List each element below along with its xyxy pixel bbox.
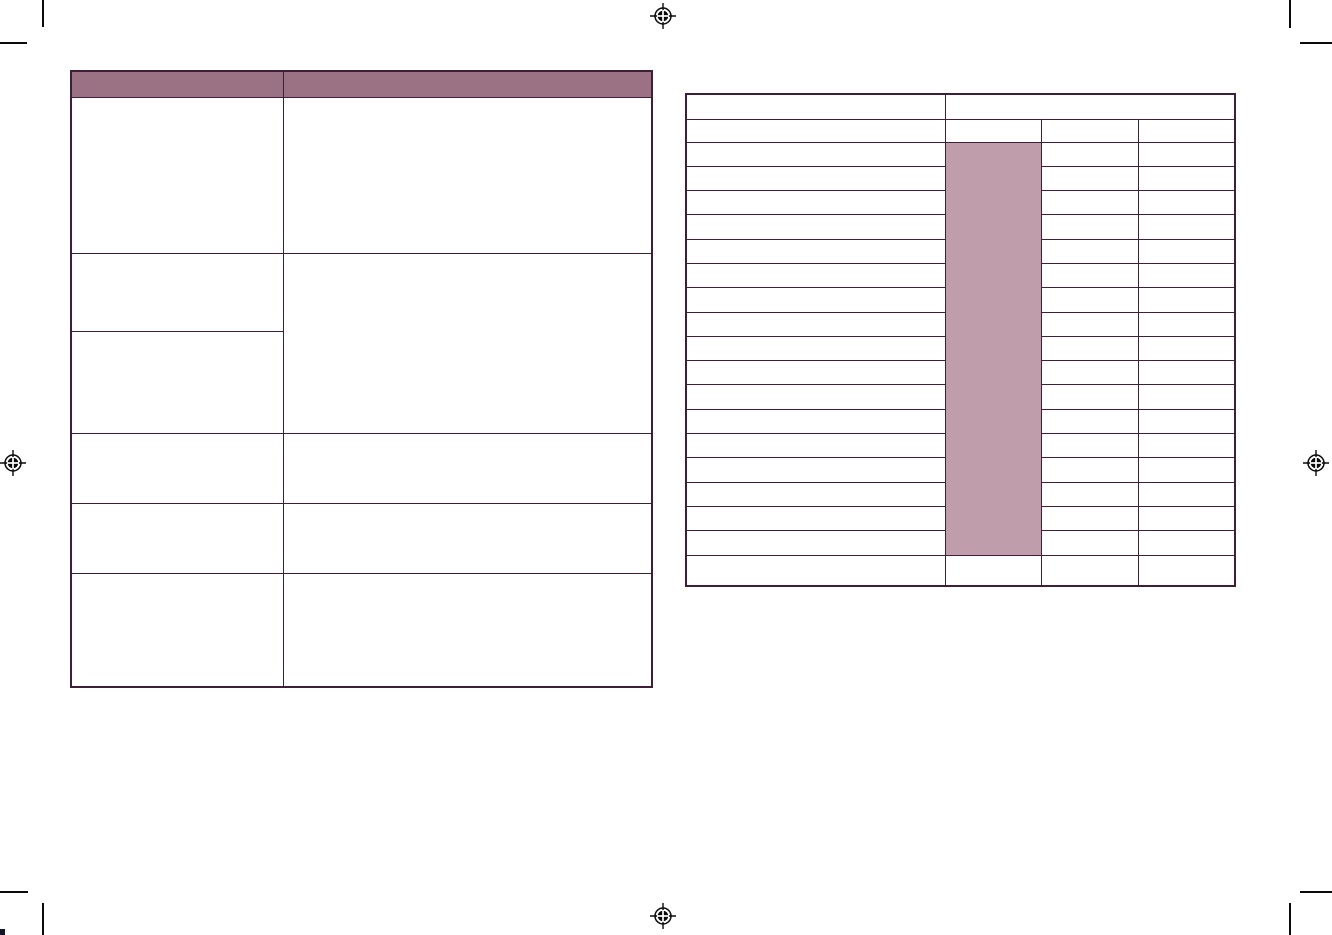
right-table [685, 93, 1236, 587]
right-table-footer-row [686, 555, 1235, 586]
right-table-cell [686, 555, 945, 586]
right-table-cell [1138, 166, 1235, 190]
right-table-cell [1138, 336, 1235, 360]
right-table-cell [1041, 119, 1138, 142]
right-table-cell [1041, 361, 1138, 385]
right-table-body [686, 142, 1235, 555]
right-table-cell [1138, 142, 1235, 166]
right-table-cell [686, 239, 945, 263]
right-table-cell [686, 191, 945, 215]
left-table-merged-cell [283, 253, 652, 433]
right-table-cell [1041, 191, 1138, 215]
crop-mark-top-left-horizontal [0, 42, 27, 44]
right-table-cell [1138, 361, 1235, 385]
right-table-cell [1041, 531, 1138, 555]
right-table-cell [1138, 434, 1235, 458]
right-table-header-row-1 [686, 94, 1235, 119]
right-table-cell [1138, 506, 1235, 530]
left-table-cell [71, 573, 283, 687]
registration-mark-icon [1303, 450, 1329, 476]
right-table-cell [1041, 142, 1138, 166]
right-table-cell [1041, 458, 1138, 482]
left-table-header-cell [71, 71, 283, 97]
right-table-cell [686, 94, 945, 119]
registration-mark-icon [650, 903, 676, 929]
right-table-cell [686, 166, 945, 190]
right-table-cell [1041, 482, 1138, 506]
left-table-row [71, 253, 652, 331]
right-table-cell [1138, 458, 1235, 482]
right-table-merged-header-cell [945, 94, 1235, 119]
right-table-cell [1138, 385, 1235, 409]
right-table-cell [1138, 119, 1235, 142]
right-table-cell [1138, 531, 1235, 555]
right-table-cell [686, 288, 945, 312]
left-table [70, 70, 653, 688]
right-table-cell [1138, 215, 1235, 239]
crop-mark-bottom-left-vertical [42, 903, 44, 935]
right-table-cell [686, 336, 945, 360]
left-table-cell [71, 331, 283, 433]
left-table-row [71, 97, 652, 253]
right-table-cell [1041, 166, 1138, 190]
right-table-cell [686, 312, 945, 336]
right-table-cell [1041, 506, 1138, 530]
right-table-cell [1138, 191, 1235, 215]
left-table-cell [71, 253, 283, 331]
left-table-cell [71, 97, 283, 253]
crop-mark-bottom-right-horizontal [1300, 891, 1332, 893]
left-table-row [71, 503, 652, 573]
left-table-header-cell [283, 71, 652, 97]
left-table-cell [283, 503, 652, 573]
right-table-cell [1041, 409, 1138, 433]
right-table-cell [1041, 263, 1138, 287]
right-table-cell [1041, 215, 1138, 239]
document-page [0, 0, 1332, 935]
crop-mark-top-right-vertical [1289, 0, 1291, 28]
right-table-cell [1041, 239, 1138, 263]
right-table-cell [686, 482, 945, 506]
right-table-cell [1138, 239, 1235, 263]
right-table-cell [1041, 385, 1138, 409]
right-table-cell [686, 434, 945, 458]
crop-mark-top-left-vertical [42, 0, 44, 27]
right-table-cell [1041, 555, 1138, 586]
right-table-cell [686, 531, 945, 555]
left-table-header-row [71, 71, 652, 97]
right-table-cell [1138, 263, 1235, 287]
right-table-cell [1138, 409, 1235, 433]
registration-mark-icon [650, 3, 676, 29]
right-table-highlight-cell [945, 142, 1041, 555]
registration-mark-icon [0, 450, 26, 476]
left-table-cell [283, 97, 652, 253]
right-table-cell [686, 142, 945, 166]
right-table-cell [686, 361, 945, 385]
right-table-cell [1138, 482, 1235, 506]
crop-mark-top-right-horizontal [1300, 42, 1332, 44]
right-table-cell [686, 506, 945, 530]
left-table-cell [71, 433, 283, 503]
right-table-row [686, 142, 1235, 166]
right-table-cell [1041, 312, 1138, 336]
crop-mark-bottom-right-vertical [1289, 903, 1291, 935]
left-table-cell [71, 503, 283, 573]
left-table-cell [283, 433, 652, 503]
right-table-cell [1041, 434, 1138, 458]
right-table-cell [686, 215, 945, 239]
right-table-cell [1138, 555, 1235, 586]
right-table-cell [686, 409, 945, 433]
left-table-row [71, 433, 652, 503]
right-table-cell [686, 458, 945, 482]
left-table-cell [283, 573, 652, 687]
right-table-cell [686, 385, 945, 409]
right-table-cell [945, 555, 1041, 586]
page-corner-speck [0, 929, 5, 935]
right-table-cell [686, 119, 945, 142]
right-table-cell [1138, 288, 1235, 312]
right-table-cell [1041, 336, 1138, 360]
right-table-cell [945, 119, 1041, 142]
right-table-cell [686, 263, 945, 287]
right-table-cell [1138, 312, 1235, 336]
right-table-cell [1041, 288, 1138, 312]
left-table-row [71, 573, 652, 687]
crop-mark-bottom-left-horizontal [0, 891, 28, 893]
right-table-header-row-2 [686, 119, 1235, 142]
